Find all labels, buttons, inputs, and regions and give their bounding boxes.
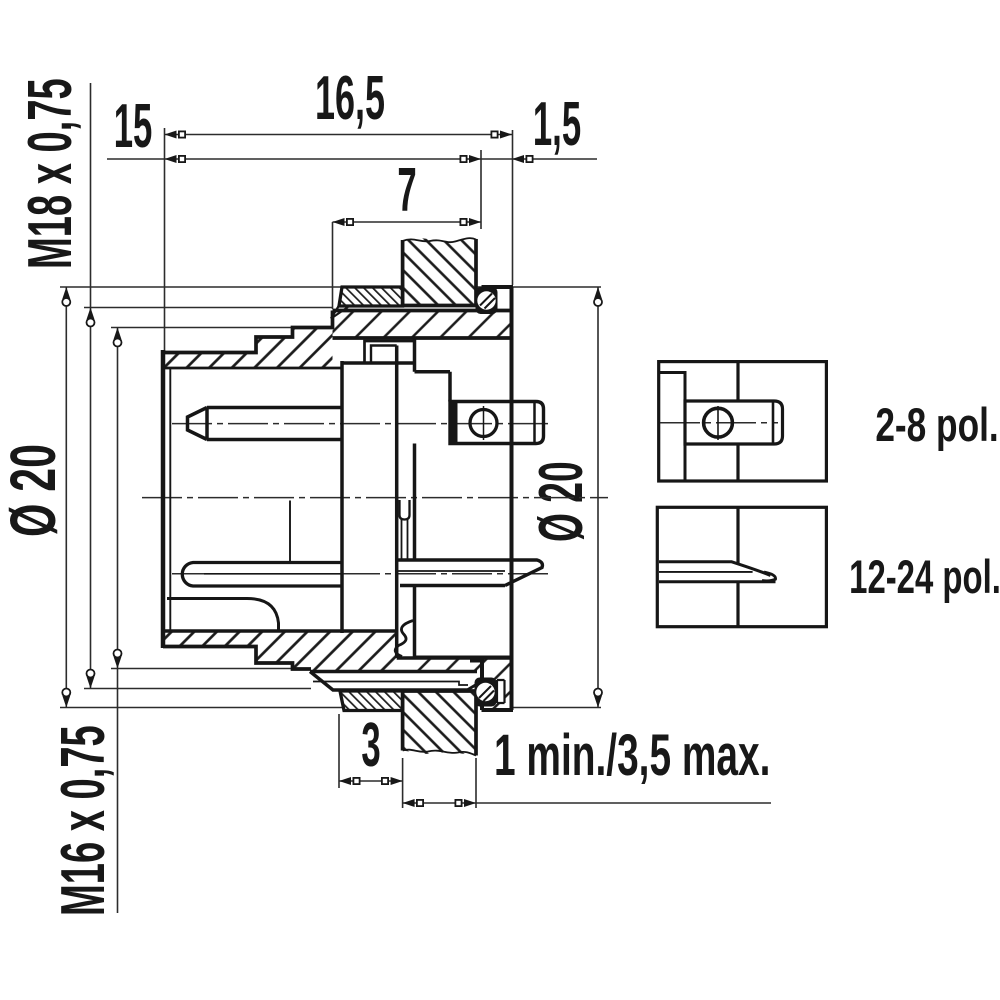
- svg-text:2-8 pol.: 2-8 pol.: [875, 398, 998, 451]
- svg-text:M16 x 0,75: M16 x 0,75: [47, 725, 117, 916]
- svg-text:M18 x 0,75: M18 x 0,75: [14, 78, 84, 269]
- svg-text:Ø 20: Ø 20: [0, 444, 69, 537]
- svg-text:3: 3: [361, 710, 380, 779]
- svg-text:12-24 pol.: 12-24 pol.: [849, 550, 1000, 603]
- svg-text:1 min./3,5 max.: 1 min./3,5 max.: [494, 723, 770, 788]
- svg-text:15: 15: [114, 91, 153, 160]
- svg-text:16,5: 16,5: [315, 63, 385, 133]
- svg-text:7: 7: [397, 155, 416, 224]
- svg-text:Ø 20: Ø 20: [526, 461, 595, 542]
- svg-text:1,5: 1,5: [533, 89, 581, 158]
